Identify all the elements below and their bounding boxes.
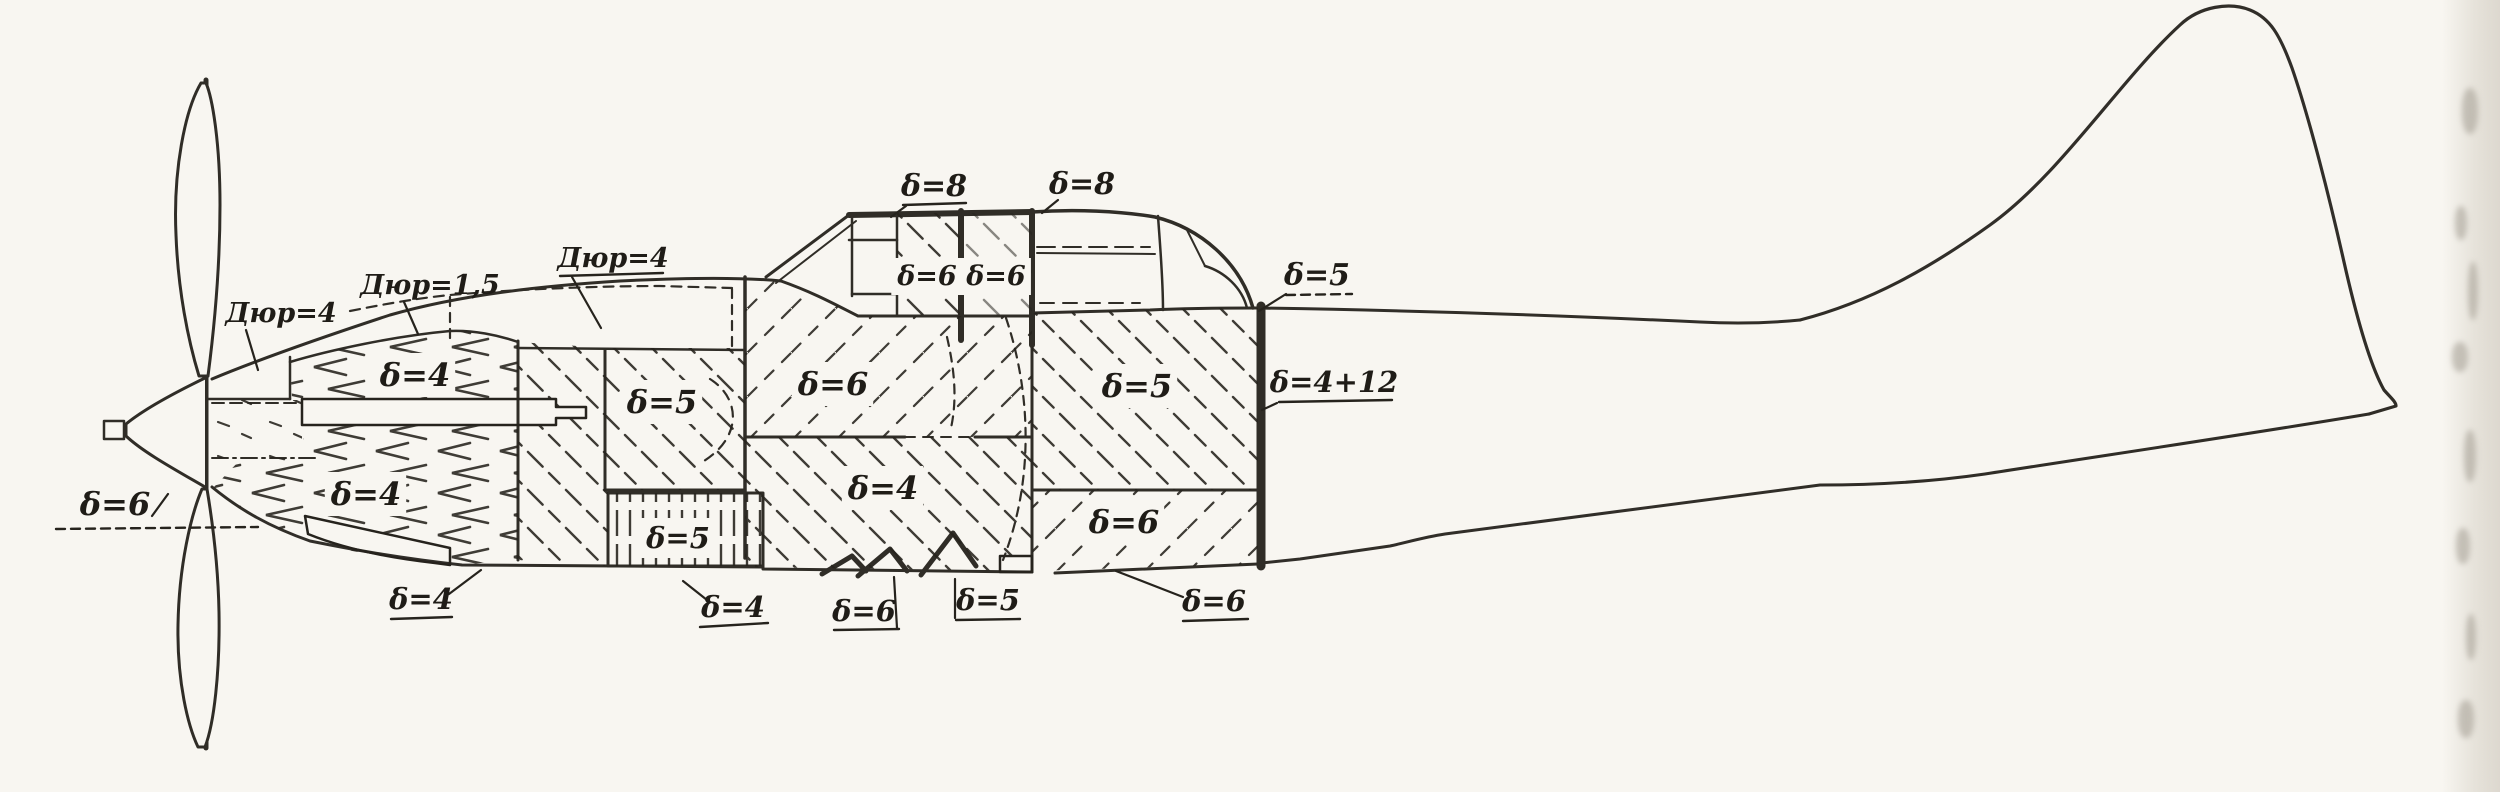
hood-dome-inner-arc — [1205, 266, 1247, 308]
label-d5-bottom-mid: δ=5 — [955, 579, 1020, 620]
label-d6-bottom-rear-leader — [1116, 571, 1183, 597]
spinner-tip-hub — [104, 421, 124, 439]
label-d6-rear-lower-text: δ=6 — [1088, 503, 1159, 541]
scanned-armor-diagram-page: Дюр=4Дюр=1,5Дюр=4δ=8δ=8δ=6δ=6δ=5δ=4δ=5δ=… — [0, 0, 2500, 792]
label-d4-nose-bottom: δ=4 — [388, 570, 481, 619]
label-d6-canopy-front-text: δ=6 — [896, 261, 957, 292]
label-d5-striped-text: δ=5 — [645, 521, 710, 555]
region-nose-dotted-zone — [210, 400, 302, 458]
label-d6-rear-lower: δ=6 — [1083, 500, 1164, 544]
windscreen-frame — [766, 215, 849, 277]
label-d6-canopy-front: δ=6 — [891, 258, 962, 295]
label-d5-mid-text: δ=5 — [626, 383, 697, 421]
tail-fin-outline — [1800, 6, 2396, 414]
label-d5-fairing-underline — [1286, 294, 1352, 295]
turtledeck-top — [1258, 308, 1800, 323]
hood-rail-2 — [1037, 253, 1155, 254]
label-d8-right: δ=8 — [1042, 167, 1115, 213]
label-d6-spinner-text: δ=6 — [79, 485, 150, 523]
label-d4-nose-top-text: δ=4 — [379, 356, 450, 394]
label-d6-bottom-rear-text: δ=6 — [1181, 584, 1246, 618]
label-d4-floor: δ=4 — [842, 466, 923, 510]
label-dur4-top-text: Дюр=4 — [555, 243, 668, 274]
label-d4-nose-bottom-underline — [391, 617, 452, 619]
label-d8-right-text: δ=8 — [1048, 167, 1115, 202]
label-d4plus12-underline — [1279, 400, 1392, 402]
label-d6-cockpit: δ=6 — [792, 362, 873, 406]
label-d6-bottom-mid-underline — [834, 629, 899, 630]
label-d6-cockpit-text: δ=6 — [797, 365, 868, 403]
label-d4-nose-top: δ=4 — [374, 353, 455, 397]
label-dur4-front-text: Дюр=4 — [223, 298, 336, 329]
label-d5-bottom-mid-underline — [956, 619, 1020, 620]
label-d5-bottom-mid-text: δ=5 — [955, 583, 1020, 617]
label-d4-nose-bottom-leader — [449, 570, 481, 594]
label-d4-nose-bottom-text: δ=4 — [388, 582, 453, 616]
tail-bottom-line — [1262, 414, 2369, 563]
label-d5-striped: δ=5 — [640, 518, 715, 558]
label-d6-bottom-rear: δ=6 — [1116, 571, 1248, 621]
label-d4plus12: δ=4+12 — [1262, 365, 1398, 410]
label-d5-rear-text: δ=5 — [1101, 367, 1172, 405]
label-d5-fairing-text: δ=5 — [1283, 258, 1350, 293]
propeller-blade-top — [176, 83, 220, 376]
label-d6-canopy-rear-text: δ=6 — [965, 261, 1026, 292]
sliding-hood-top — [1032, 211, 1253, 308]
label-d8-left: δ=8 — [891, 169, 967, 217]
label-d6-spinner-leader — [152, 494, 168, 516]
canopy-roof-bold — [849, 212, 1032, 215]
label-d4-bottom-front-text: δ=4 — [700, 590, 765, 624]
label-d6-bottom-mid: δ=6 — [831, 577, 899, 630]
gun-trough-cutout — [302, 399, 586, 425]
hood-dome-seam — [1158, 216, 1163, 310]
label-dur1-5: Дюр=1,5 — [358, 270, 500, 334]
spinner-cone — [126, 378, 205, 487]
label-d4-nose-big-text: δ=4 — [330, 475, 401, 513]
windscreen-inner-line — [776, 221, 856, 283]
label-d8-left-text: δ=8 — [900, 169, 967, 204]
label-dur1-5-text: Дюр=1,5 — [358, 270, 500, 301]
label-d4-bottom-front: δ=4 — [683, 581, 768, 627]
armor-scheme-drawing: Дюр=4Дюр=1,5Дюр=4δ=8δ=8δ=6δ=6δ=5δ=4δ=5δ=… — [0, 0, 2500, 792]
label-d4plus12-text: δ=4+12 — [1269, 365, 1398, 399]
label-d6-bottom-rear-underline — [1183, 619, 1248, 621]
label-d5-mid: δ=5 — [621, 380, 702, 424]
label-d5-fairing: δ=5 — [1259, 258, 1352, 311]
label-d6-bottom-mid-text: δ=6 — [831, 594, 896, 628]
region-nose-strip — [518, 342, 608, 566]
label-d6-spinner-underline — [56, 527, 258, 529]
label-d6-canopy-rear: δ=6 — [960, 258, 1031, 295]
label-d5-rear: δ=5 — [1096, 364, 1177, 408]
label-d4-floor-text: δ=4 — [847, 469, 918, 507]
bottom-step-panel — [1000, 556, 1032, 572]
label-d4-nose-big: δ=4 — [325, 472, 406, 516]
